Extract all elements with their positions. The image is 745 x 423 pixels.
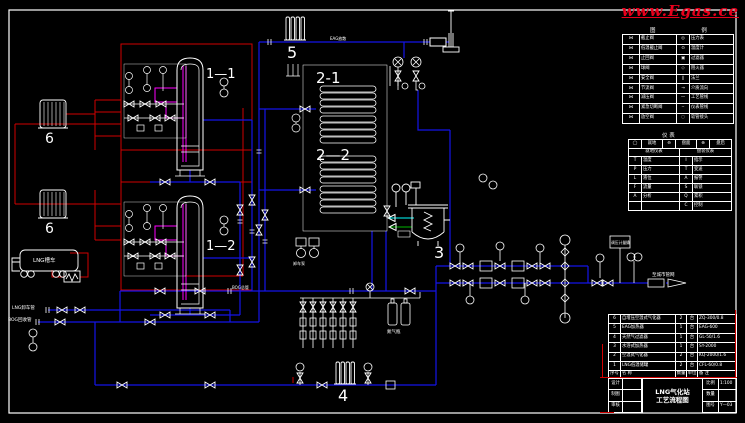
label-unload-line2: BOG回收管 [8,316,32,323]
flame-arrestor [430,38,446,46]
label-vaporizer1: 2-1 [316,69,341,87]
cell-unit: 台 [687,334,698,343]
cell-note: KQ-2000/1.6 [698,353,737,362]
cell-unit: 台 [687,343,698,352]
red-border-v2 [735,310,736,378]
cell-s1: ⋈ [623,84,640,94]
cell-n1: 温度 [642,157,680,166]
cell-s2: ◇ [677,65,690,75]
cell-n2: 变送 [693,166,732,175]
title-block: 设计制图审核 LNG气化站 工艺流程图 比例1:100数量图号Y—03 [608,378,737,413]
cell-n2: 仪表管线 [690,104,734,114]
cell-qty: 1 [676,343,687,352]
cell-s2: — [677,94,690,104]
cell-n2: 法兰 [690,75,734,85]
red-border-v [602,344,603,378]
label-vent: EAG放散 [330,35,346,41]
cell-n2: 联锁 [693,184,732,193]
cell-no: 2 [609,353,621,362]
red-border-h [600,377,737,378]
label-truck: LNG槽车 [33,256,56,264]
cell-n2: 介质流向 [690,84,734,94]
cell-s2: ⊙ [677,45,690,55]
label-heater: 3 [434,243,444,262]
cell-s1: ⋈ [623,45,640,55]
parts-table: 6自增压空温式气化器2台ZQ-300/0.85EAG加热器1台EAG-6004天… [608,314,737,371]
cell-note: GL-50/1.6 [698,334,737,343]
cell-name: EAG加热器 [621,324,676,333]
cell-s1: ⋈ [623,65,640,75]
cad-canvas: 1—1 1—2 2-1 2—2 3 4 5 6 6 LNG槽车 LNG卸车管 B… [0,0,745,423]
cell-n1: 液位 [642,175,680,184]
legend-table: ⋈截止阀◎压力表⋈低温截止阀⊙温度计⋈止回阀▣过滤器⋈球阀◇阻火器⋈安全阀∥法兰… [622,34,734,124]
label-bog-header: BOG总管 [232,284,249,290]
cell-note: ZQ-300/0.8 [698,315,737,324]
cell-l2: C [680,202,693,211]
metering-runs [450,174,550,304]
filling-manifold [300,283,420,348]
inst-table: T温度I指示P压力T变送L液位A报警F流量S联锁A分析Q累积C控制 [628,156,732,211]
inst-title: 仪 表 [662,131,675,139]
cell-n2: 软管接头 [690,114,734,124]
label-vaporizer2: 2—2 [316,146,350,164]
label-outlet: 至城市管网 [652,271,675,278]
cell-s2: ╌ [677,104,690,114]
cell-n1: 减压阀 [640,94,677,104]
cell-n1: 低温截止阀 [640,45,677,55]
cell-n1 [642,202,680,211]
cell-s1: ⋈ [623,55,640,65]
cell-l2: A [680,175,693,184]
cell-n2: 累积 [693,193,732,202]
cell-name: 空温式气化器 [621,353,676,362]
cell-no: 4 [609,334,621,343]
cell-k: 比例 [703,379,719,390]
legend-title: 图 例 [650,26,729,34]
cell-v [623,402,642,413]
cell-n2: 工艺管线 [690,94,734,104]
title-block-signatures: 设计制图审核 [608,378,642,413]
cell-l1: T [629,157,642,166]
water-lines [388,215,414,231]
cell-qty: 1 [676,334,687,343]
vaporizer-outlet-cluster [390,57,425,90]
cell-n1: 截止阀 [640,35,677,45]
cell-l1: A [629,193,642,202]
cell-n2: 控制 [693,202,732,211]
cell-l2: Q [680,193,693,202]
title-block-name: LNG气化站 工艺流程图 [642,378,702,413]
cell-s1: ⋈ [623,75,640,85]
cell-n1: 压力 [642,166,680,175]
cell-s2: ◎ [677,35,690,45]
cell-l2: I [680,157,693,166]
cell-note: SY-2000 [698,343,737,352]
cell-n1: 分析 [642,193,680,202]
cell-v: 1:100 [719,379,737,390]
cell-s1: ⋈ [623,35,640,45]
cell-n1: 球阀 [640,65,677,75]
cell-n1: 流量 [642,184,680,193]
cell-v [623,379,642,390]
cell-no: 3 [609,343,621,352]
cell-n1: 节流阀 [640,84,677,94]
cell-qty: 2 [676,315,687,324]
relief-chain [560,235,570,323]
cell-name: 天然气过滤器 [621,334,676,343]
equipment [12,11,686,389]
cell-n1: 紧急切断阀 [640,104,677,114]
lng-tank-1 [175,58,205,176]
cell-s1: ⋈ [623,114,640,124]
cell-unit: 台 [687,315,698,324]
outlet-section [592,236,686,287]
cell-unit: 台 [687,353,698,362]
label-filter: 4 [338,386,348,405]
label-n2-bottles: 氮气瓶 [387,328,401,335]
cell-s2: ◌ [677,114,690,124]
cell-no: 5 [609,324,621,333]
lng-tank-2 [175,196,205,314]
cell-l1: L [629,175,642,184]
equipment-labels: 1—1 1—2 2-1 2—2 3 4 5 6 6 LNG槽车 LNG卸车管 B… [8,35,675,405]
cell-k: 制图 [609,390,623,401]
eag-heater [284,17,306,40]
label-pump: 卸车泵 [293,260,305,266]
ng-filter [334,362,356,384]
cell-s2: ▣ [677,55,690,65]
drawing-subtitle: 工艺流程图 [643,396,702,404]
water-bath-heater [384,182,450,246]
cell-v: Y—03 [719,402,737,413]
cell-n2: 过滤器 [690,55,734,65]
cell-s2: → [677,84,690,94]
cell-n1: 放空阀 [640,114,677,124]
label-unload-line1: LNG卸车管 [12,304,35,311]
cell-s2: ∥ [677,75,690,85]
cell-l1: F [629,184,642,193]
cell-unit: 台 [687,324,698,333]
label-tank1: 1—1 [206,67,236,82]
cell-name: 自增压空温式气化器 [621,315,676,324]
cell-l1 [629,202,642,211]
lng-pumps [296,238,319,258]
red-piping [15,44,293,383]
cell-k: 设计 [609,379,623,390]
label-tank2: 1—2 [206,239,236,254]
label-eag-heater: 5 [287,43,297,62]
cell-name: 水浴式加热器 [621,343,676,352]
label-press-vap2: 6 [45,221,54,237]
cell-n1: 止回阀 [640,55,677,65]
label-press-vap1: 6 [45,131,54,147]
cell-l2: T [680,166,693,175]
cell-n2: 温度计 [690,45,734,55]
cell-note: EAG-600 [698,324,737,333]
watermark-logo: www.Egas.ce [622,2,739,20]
cell-qty: 1 [676,324,687,333]
cell-l2: S [680,184,693,193]
cell-l1: P [629,166,642,175]
drawing-title: LNG气化站 [643,388,702,396]
cell-k: 图号 [703,402,719,413]
red-border-corner [600,412,614,413]
cell-v [623,390,642,401]
cell-n2: 报警 [693,175,732,184]
cell-n2: 阻火器 [690,65,734,75]
cell-k: 数量 [703,390,719,401]
cell-s1: ⋈ [623,94,640,104]
title-block-meta: 比例1:100数量图号Y—03 [702,378,737,413]
cell-no: 6 [609,315,621,324]
cell-n1: 安全阀 [640,75,677,85]
cell-qty: 2 [676,353,687,362]
cell-s1: ⋈ [623,104,640,114]
cell-v [719,390,737,401]
cell-n2: 压力表 [690,35,734,45]
cell-n2: 指示 [693,157,732,166]
label-panel: 调压计量撬 [611,240,630,245]
